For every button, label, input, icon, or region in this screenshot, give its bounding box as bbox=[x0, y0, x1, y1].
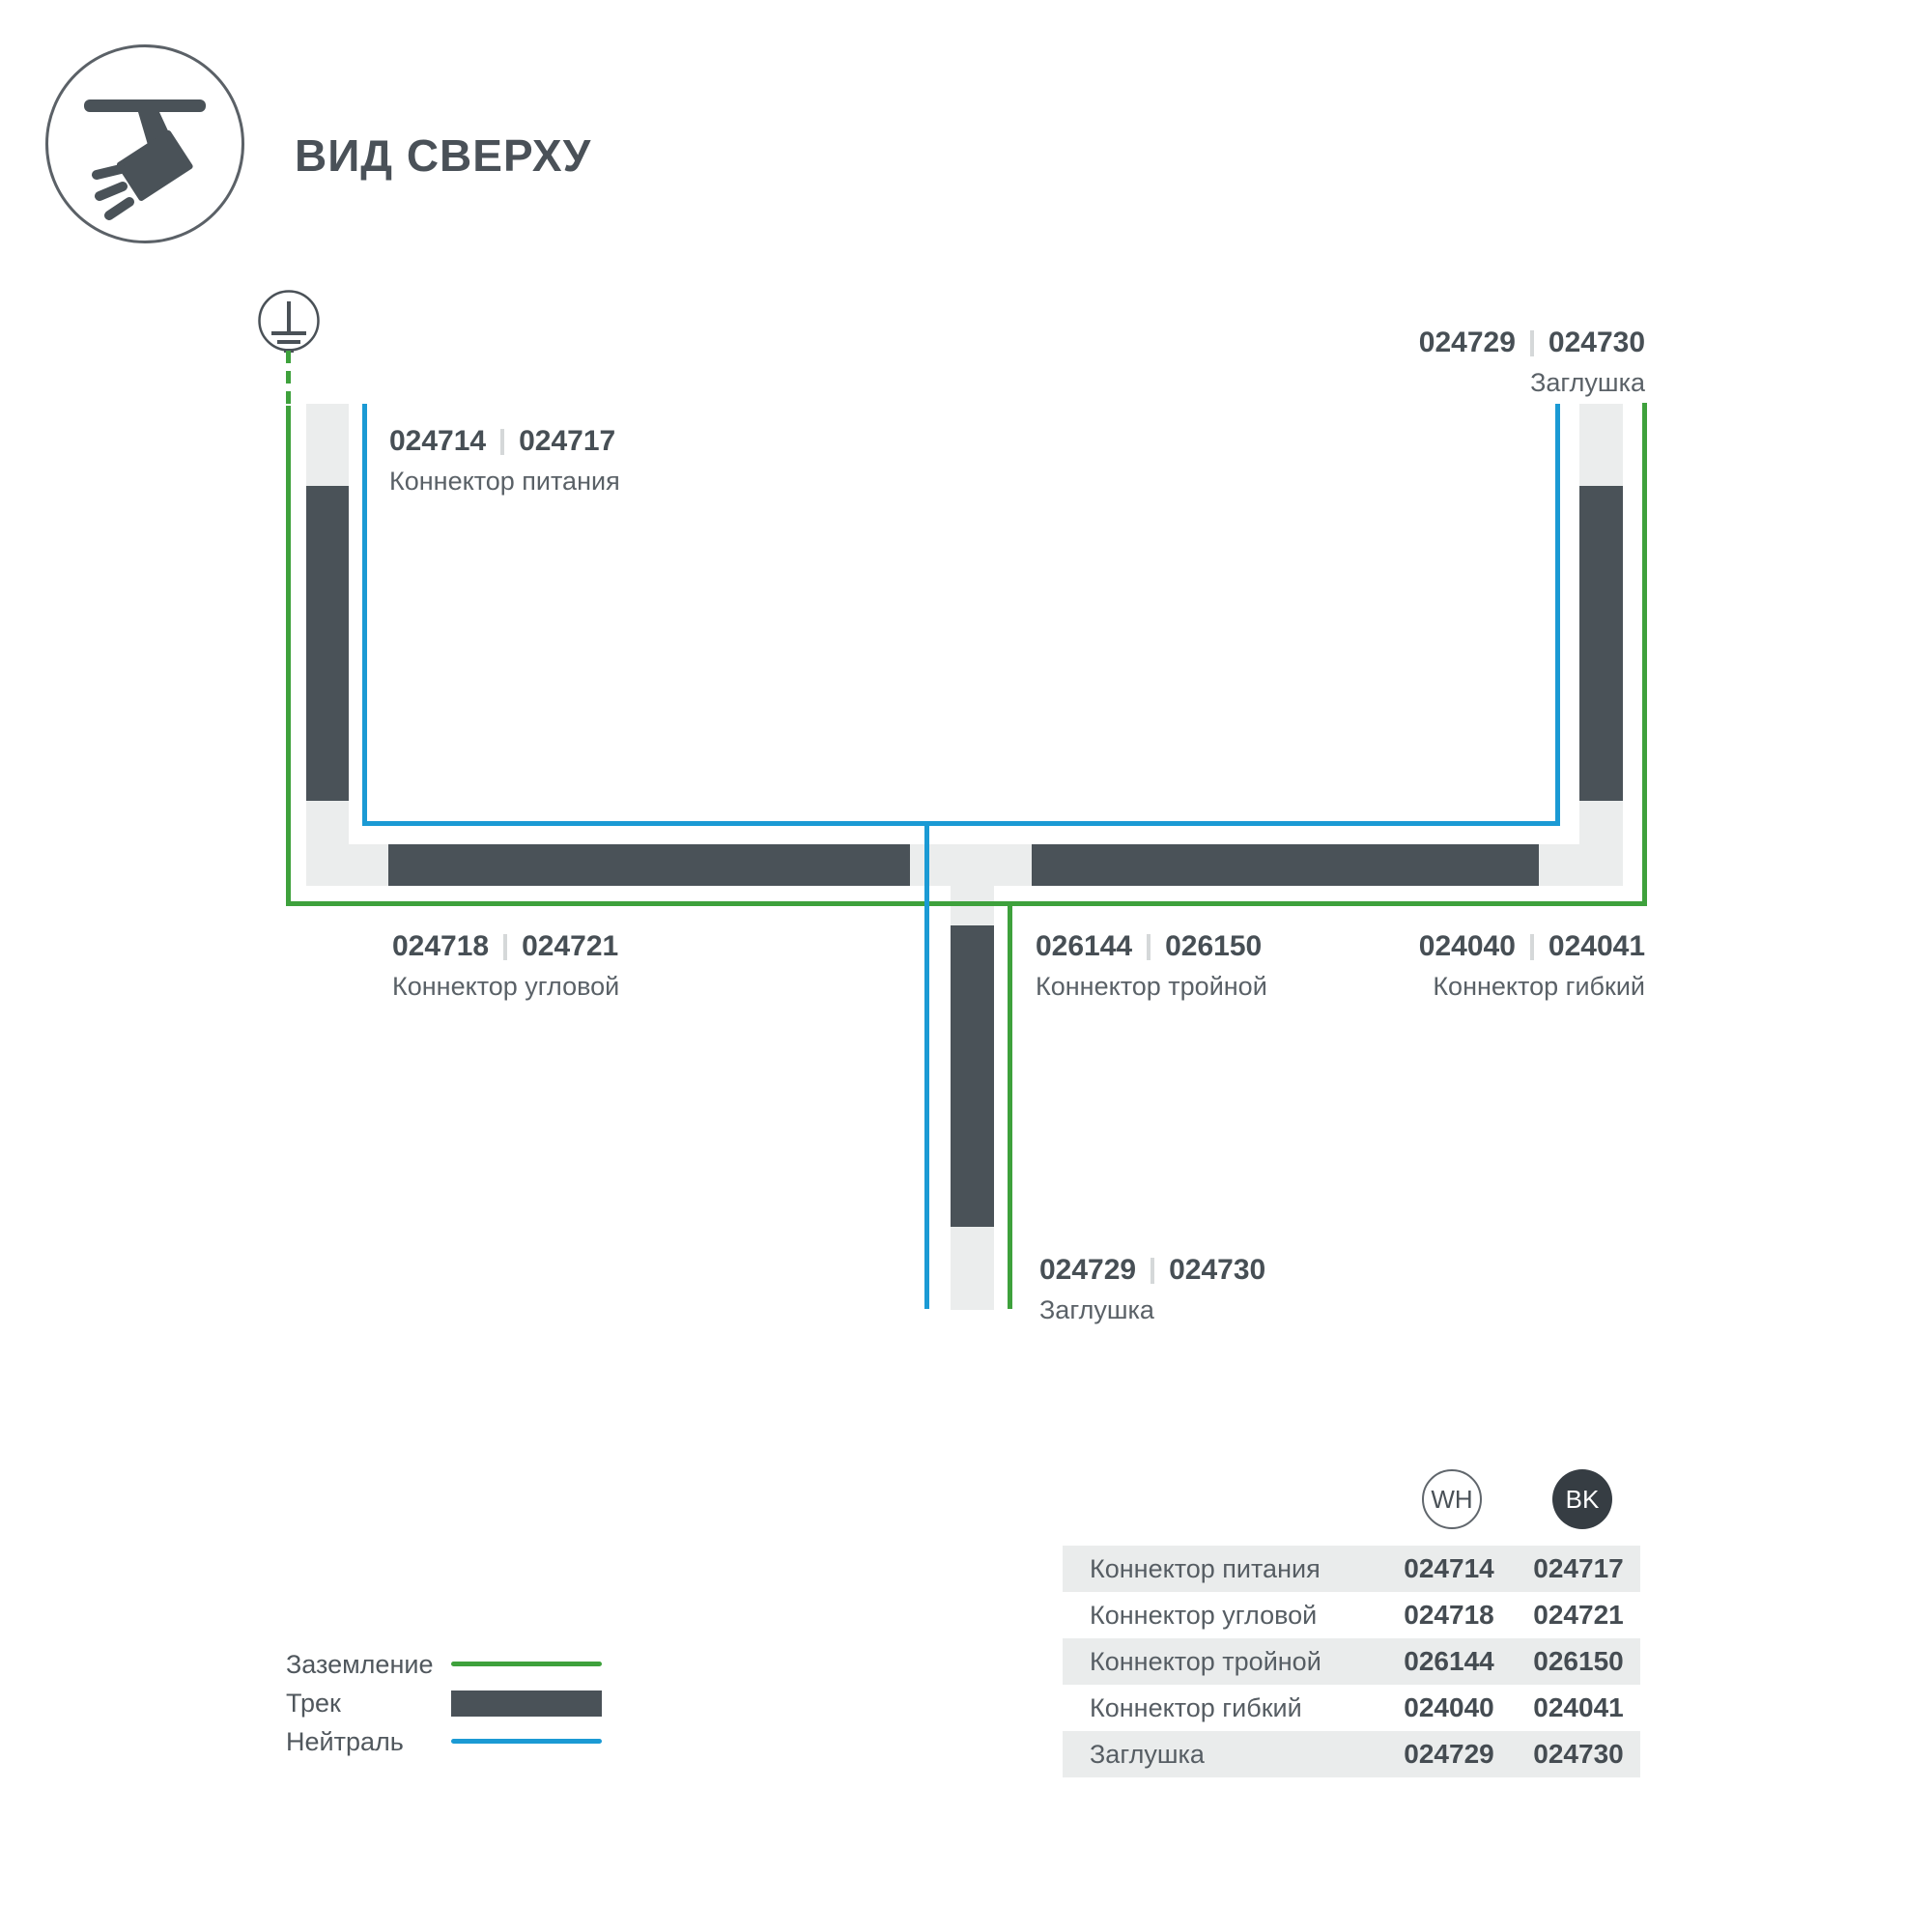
ground-wire-left bbox=[286, 406, 291, 906]
track-rail-right bbox=[1579, 486, 1623, 801]
part-name: Заглушка bbox=[1063, 1740, 1381, 1770]
code-bk: 026150 bbox=[1165, 930, 1262, 963]
code-bk: 024730 bbox=[1548, 327, 1645, 359]
track-rail-bottom-left bbox=[388, 844, 910, 886]
part-code-bk: 026150 bbox=[1517, 1646, 1640, 1677]
code-separator bbox=[1530, 934, 1534, 960]
end-cap-bottom bbox=[951, 1227, 994, 1310]
code-wh: 024040 bbox=[1419, 930, 1516, 963]
legend-label: Трек bbox=[286, 1689, 341, 1719]
code-bk: 024041 bbox=[1548, 930, 1645, 963]
table-row: Коннектор питания 024714 024717 bbox=[1063, 1546, 1640, 1592]
part-code-wh: 024729 bbox=[1381, 1739, 1517, 1770]
legend-ground-line bbox=[451, 1662, 602, 1666]
part-name: Коннектор тройной bbox=[1063, 1647, 1381, 1677]
ground-wire-dashed bbox=[286, 351, 291, 406]
code-wh: 024729 bbox=[1039, 1254, 1136, 1287]
part-name: Коннектор угловой bbox=[1063, 1601, 1381, 1631]
part-codes: 024714 024717 bbox=[389, 425, 620, 458]
part-name: Коннектор тройной bbox=[1036, 972, 1267, 1002]
part-name: Заглушка bbox=[1039, 1295, 1265, 1325]
label-corner-connector: 024718 024721 Коннектор угловой bbox=[392, 930, 619, 1002]
neutral-wire-middle bbox=[362, 821, 1560, 826]
part-code-bk: 024041 bbox=[1517, 1692, 1640, 1723]
track-rail-left bbox=[306, 486, 349, 801]
legend-label: Заземление bbox=[286, 1650, 433, 1680]
part-codes: 026144 026150 bbox=[1036, 930, 1267, 963]
label-power-connector: 024714 024717 Коннектор питания bbox=[389, 425, 620, 497]
table-row: Коннектор тройной 026144 026150 bbox=[1063, 1638, 1640, 1685]
neutral-wire-right bbox=[1555, 404, 1560, 826]
part-code-wh: 024040 bbox=[1381, 1692, 1517, 1723]
code-separator bbox=[1147, 934, 1151, 960]
page-title: ВИД СВЕРХУ bbox=[295, 129, 591, 182]
ground-wire-right bbox=[1642, 403, 1647, 906]
legend-row-track: Трек bbox=[286, 1690, 602, 1717]
code-wh: 024729 bbox=[1419, 327, 1516, 359]
ground-wire-bottom bbox=[286, 901, 1647, 906]
code-wh: 026144 bbox=[1036, 930, 1132, 963]
label-end-cap-bottom: 024729 024730 Заглушка bbox=[1039, 1254, 1265, 1325]
part-name: Коннектор гибкий bbox=[1433, 972, 1645, 1002]
part-code-bk: 024730 bbox=[1517, 1739, 1640, 1770]
part-name: Коннектор угловой bbox=[392, 972, 619, 1002]
part-name: Заглушка bbox=[1530, 368, 1645, 398]
code-wh: 024718 bbox=[392, 930, 489, 963]
code-separator bbox=[1530, 330, 1534, 356]
legend-track-bar bbox=[451, 1690, 602, 1717]
neutral-wire-left bbox=[362, 404, 367, 826]
code-bk: 024721 bbox=[522, 930, 618, 963]
code-separator bbox=[1151, 1258, 1154, 1284]
label-tee-connector: 026144 026150 Коннектор тройной bbox=[1036, 930, 1267, 1002]
track-spotlight-icon bbox=[45, 44, 244, 243]
part-codes: 024040 024041 bbox=[1419, 930, 1645, 963]
part-name: Коннектор питания bbox=[389, 467, 620, 497]
part-code-wh: 026144 bbox=[1381, 1646, 1517, 1677]
legend-label: Нейтраль bbox=[286, 1727, 404, 1757]
label-end-cap-top: 024729 024730 Заглушка bbox=[1419, 327, 1645, 398]
ground-wire-branch bbox=[1008, 906, 1012, 1309]
part-name: Коннектор гибкий bbox=[1063, 1693, 1381, 1723]
track-rail-bottom-right bbox=[1032, 844, 1539, 886]
corner-connector-right bbox=[1539, 844, 1623, 886]
track-rail-stem bbox=[951, 925, 994, 1227]
part-code-bk: 024717 bbox=[1517, 1553, 1640, 1584]
table-row: Коннектор угловой 024718 024721 bbox=[1063, 1592, 1640, 1638]
part-name: Коннектор питания bbox=[1063, 1554, 1381, 1584]
neutral-wire-branch bbox=[924, 826, 929, 1309]
legend-row-neutral: Нейтраль bbox=[286, 1727, 602, 1756]
part-code-bk: 024721 bbox=[1517, 1600, 1640, 1631]
code-separator bbox=[500, 429, 504, 455]
part-codes: 024729 024730 bbox=[1419, 327, 1645, 359]
legend-neutral-line bbox=[451, 1739, 602, 1744]
code-separator bbox=[503, 934, 507, 960]
part-code-wh: 024714 bbox=[1381, 1553, 1517, 1584]
ground-earth-icon bbox=[257, 289, 321, 353]
column-header-wh: WH bbox=[1422, 1469, 1482, 1529]
code-bk: 024717 bbox=[519, 425, 615, 458]
parts-table: Коннектор питания 024714 024717 Коннекто… bbox=[1063, 1546, 1640, 1777]
part-code-wh: 024718 bbox=[1381, 1600, 1517, 1631]
part-codes: 024718 024721 bbox=[392, 930, 619, 963]
column-header-bk: BK bbox=[1552, 1469, 1612, 1529]
table-row: Заглушка 024729 024730 bbox=[1063, 1731, 1640, 1777]
corner-connector-left bbox=[306, 844, 388, 886]
label-flexible-connector: 024040 024041 Коннектор гибкий bbox=[1419, 930, 1645, 1002]
part-codes: 024729 024730 bbox=[1039, 1254, 1265, 1287]
code-wh: 024714 bbox=[389, 425, 486, 458]
table-row: Коннектор гибкий 024040 024041 bbox=[1063, 1685, 1640, 1731]
code-bk: 024730 bbox=[1169, 1254, 1265, 1287]
legend-row-ground: Заземление bbox=[286, 1650, 602, 1679]
